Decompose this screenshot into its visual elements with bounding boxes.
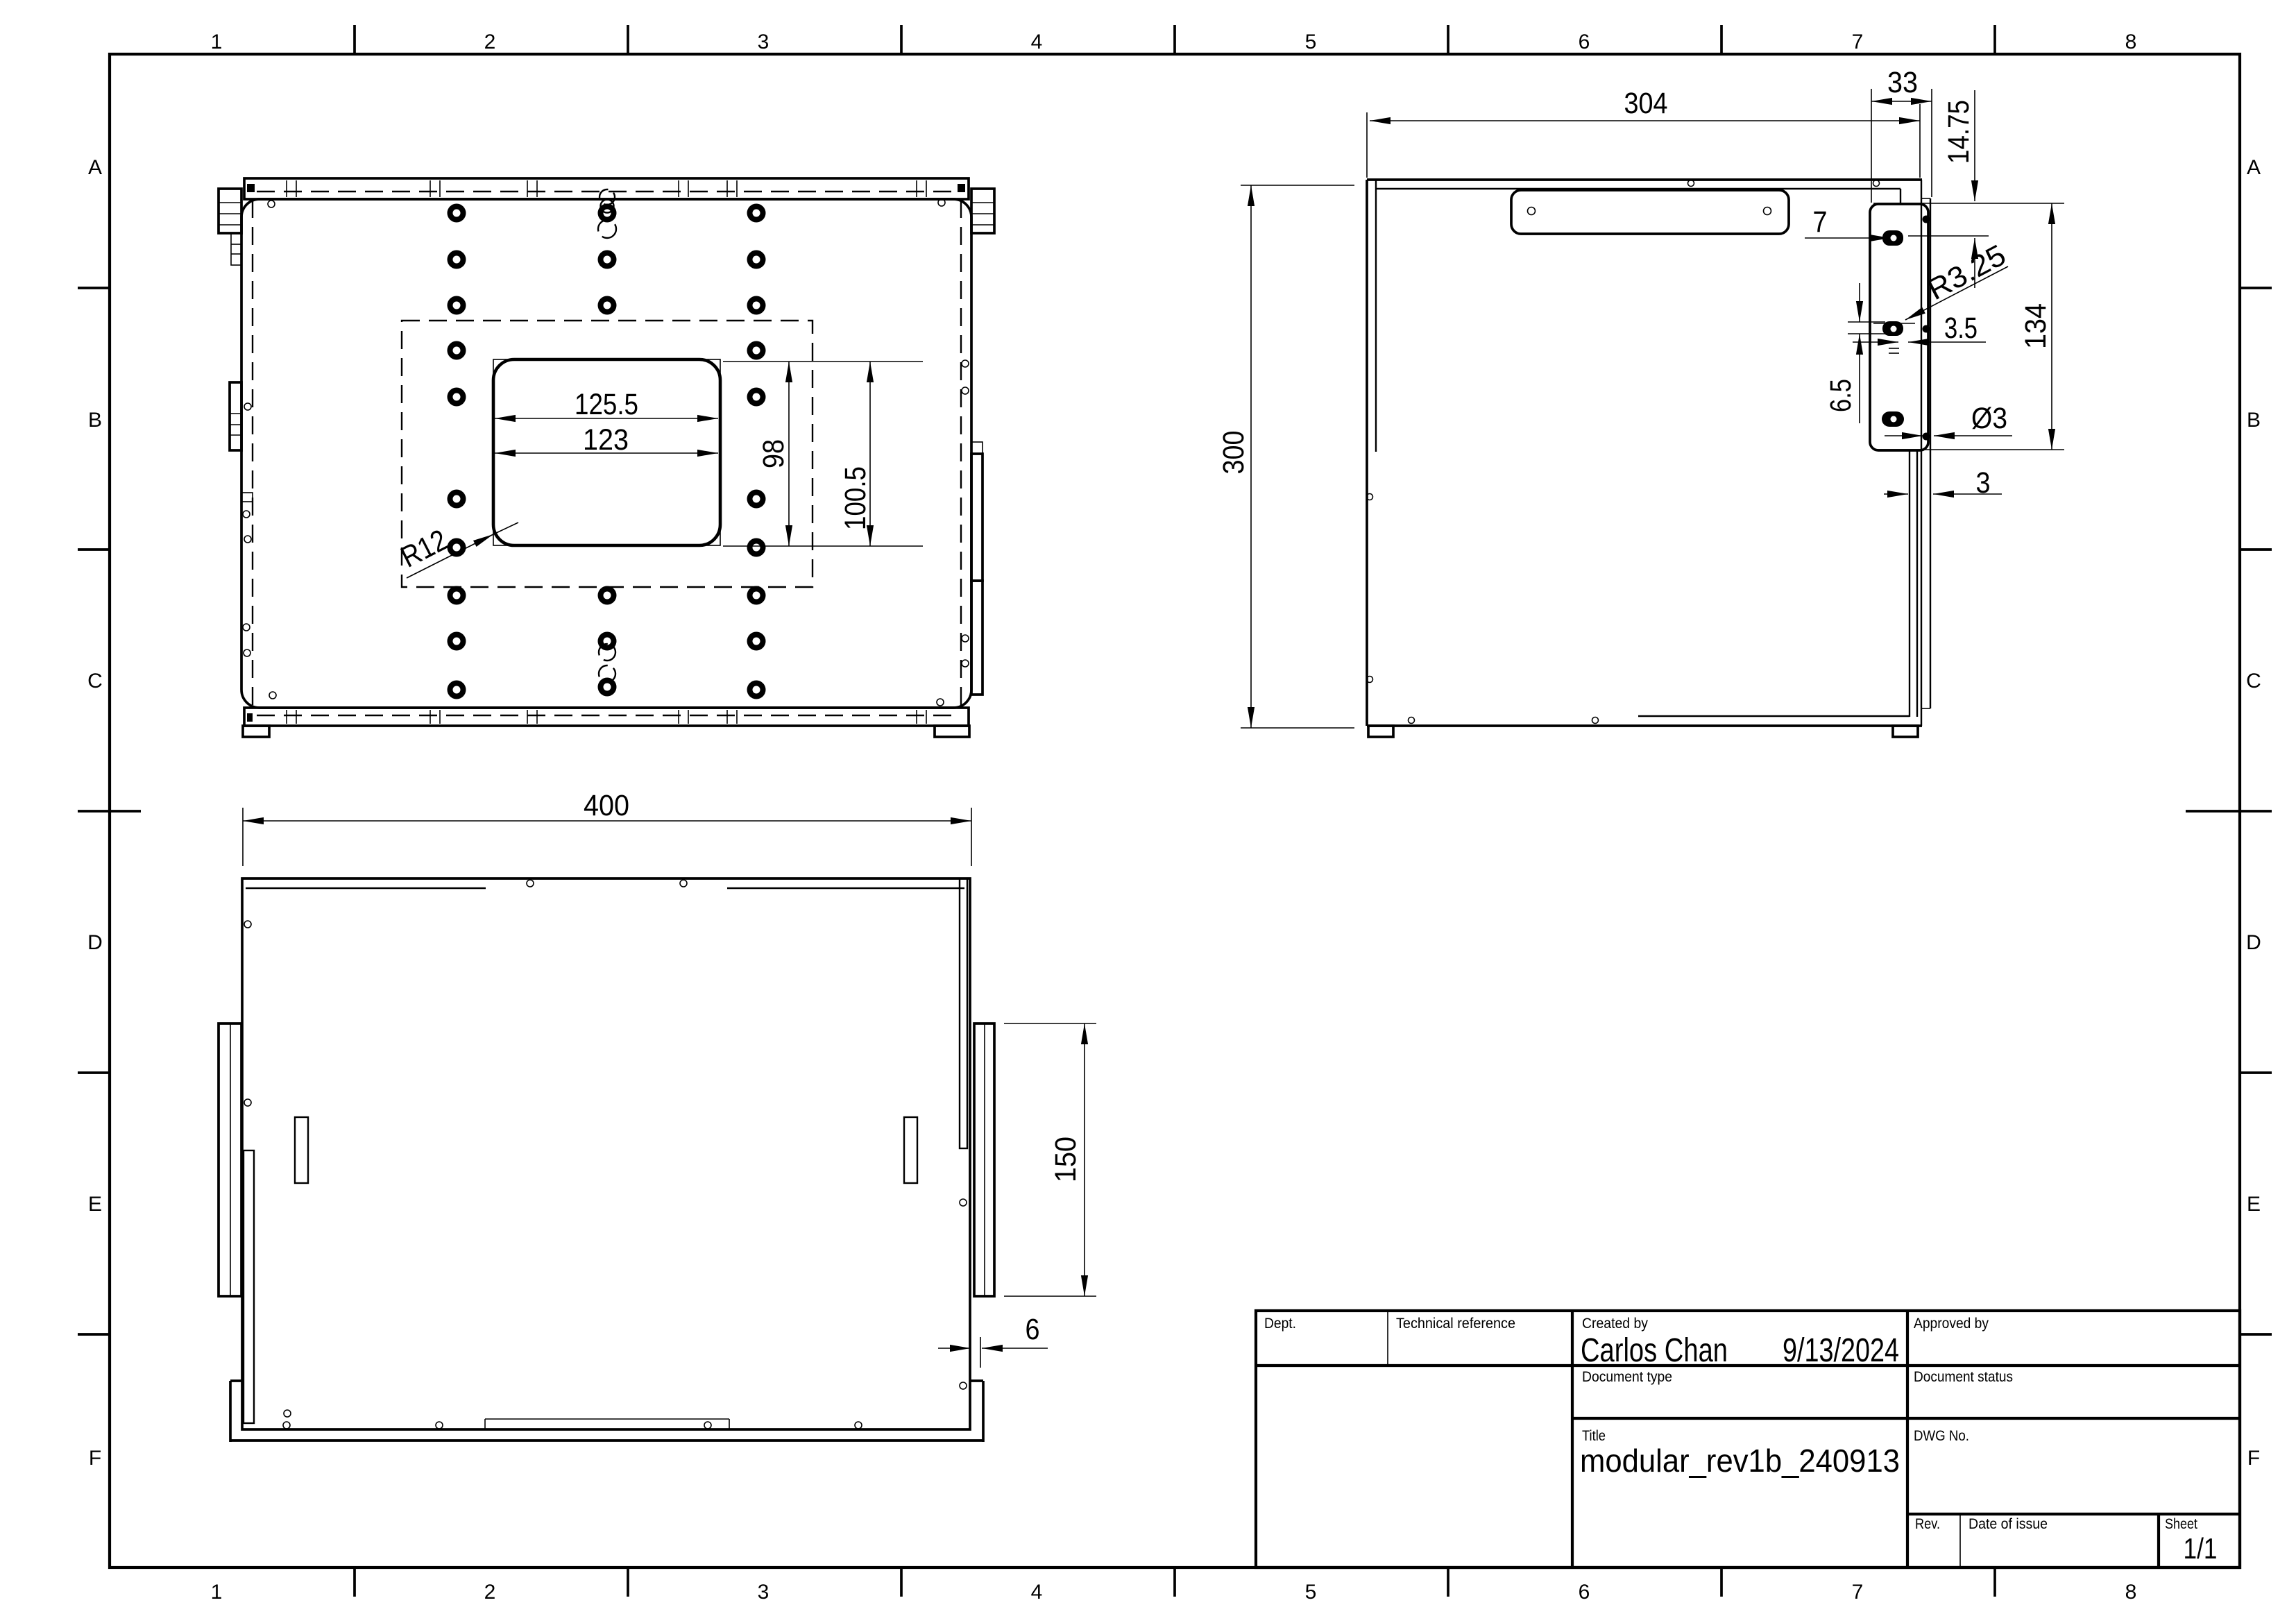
svg-text:2: 2	[484, 1581, 496, 1604]
svg-text:F: F	[2247, 1447, 2260, 1470]
svg-text:D: D	[2246, 931, 2261, 954]
svg-text:4: 4	[1031, 31, 1043, 53]
svg-text:C: C	[2246, 670, 2261, 692]
svg-text:150: 150	[1049, 1137, 1082, 1182]
svg-text:Carlos Chan: Carlos Chan	[1581, 1332, 1728, 1369]
svg-text:modular_rev1b_240913: modular_rev1b_240913	[1580, 1443, 1900, 1479]
svg-text:Date of issue: Date of issue	[1968, 1516, 2048, 1532]
svg-text:7: 7	[1813, 205, 1828, 239]
svg-text:B: B	[2247, 409, 2261, 432]
svg-text:3.5: 3.5	[1944, 312, 1978, 345]
svg-text:1/1: 1/1	[2184, 1532, 2218, 1565]
svg-text:Sheet: Sheet	[2165, 1516, 2197, 1532]
svg-text:7: 7	[1852, 31, 1864, 53]
svg-text:Dept.: Dept.	[1264, 1316, 1296, 1332]
svg-text:123: 123	[583, 423, 629, 457]
svg-text:3: 3	[1976, 466, 1991, 500]
svg-text:Technical reference: Technical reference	[1396, 1316, 1515, 1332]
svg-text:2: 2	[484, 31, 496, 53]
svg-text:Title: Title	[1582, 1428, 1606, 1444]
svg-text:304: 304	[1624, 87, 1668, 120]
svg-text:A: A	[2247, 156, 2261, 179]
svg-text:125.5: 125.5	[575, 388, 638, 421]
svg-text:400: 400	[584, 789, 629, 822]
svg-text:1: 1	[211, 31, 223, 53]
svg-text:300: 300	[1217, 431, 1250, 475]
svg-text:8: 8	[2125, 31, 2137, 53]
svg-text:3: 3	[758, 31, 769, 53]
svg-text:5: 5	[1305, 1581, 1317, 1604]
svg-text:9/13/2024: 9/13/2024	[1783, 1332, 1899, 1369]
svg-text:E: E	[2247, 1193, 2261, 1216]
svg-text:3: 3	[758, 1581, 769, 1604]
svg-text:100.5: 100.5	[839, 466, 872, 530]
svg-text:Approved by: Approved by	[1914, 1316, 1989, 1332]
svg-text:6.5: 6.5	[1824, 379, 1857, 412]
svg-text:Rev.: Rev.	[1915, 1516, 1940, 1532]
svg-text:14.75: 14.75	[1942, 100, 1975, 164]
svg-text:Ø3: Ø3	[1971, 402, 2007, 435]
svg-text:1: 1	[211, 1581, 223, 1604]
svg-text:5: 5	[1305, 31, 1317, 53]
svg-text:6: 6	[1579, 1581, 1590, 1604]
svg-text:A: A	[88, 156, 102, 179]
svg-text:6: 6	[1026, 1313, 1040, 1346]
svg-text:C: C	[87, 670, 103, 692]
svg-text:F: F	[89, 1447, 101, 1470]
svg-text:134: 134	[2019, 303, 2052, 349]
svg-text:6: 6	[1579, 31, 1590, 53]
svg-text:B: B	[88, 409, 102, 432]
svg-text:D: D	[87, 931, 103, 954]
svg-text:E: E	[88, 1193, 102, 1216]
svg-text:DWG No.: DWG No.	[1914, 1428, 1969, 1444]
svg-text:4: 4	[1031, 1581, 1043, 1604]
svg-text:7: 7	[1852, 1581, 1864, 1604]
svg-text:8: 8	[2125, 1581, 2137, 1604]
svg-text:33: 33	[1887, 66, 1918, 99]
svg-text:98: 98	[757, 439, 790, 468]
svg-text:Document status: Document status	[1914, 1369, 2013, 1385]
svg-text:Document type: Document type	[1582, 1369, 1672, 1385]
svg-text:Created by: Created by	[1582, 1316, 1648, 1332]
